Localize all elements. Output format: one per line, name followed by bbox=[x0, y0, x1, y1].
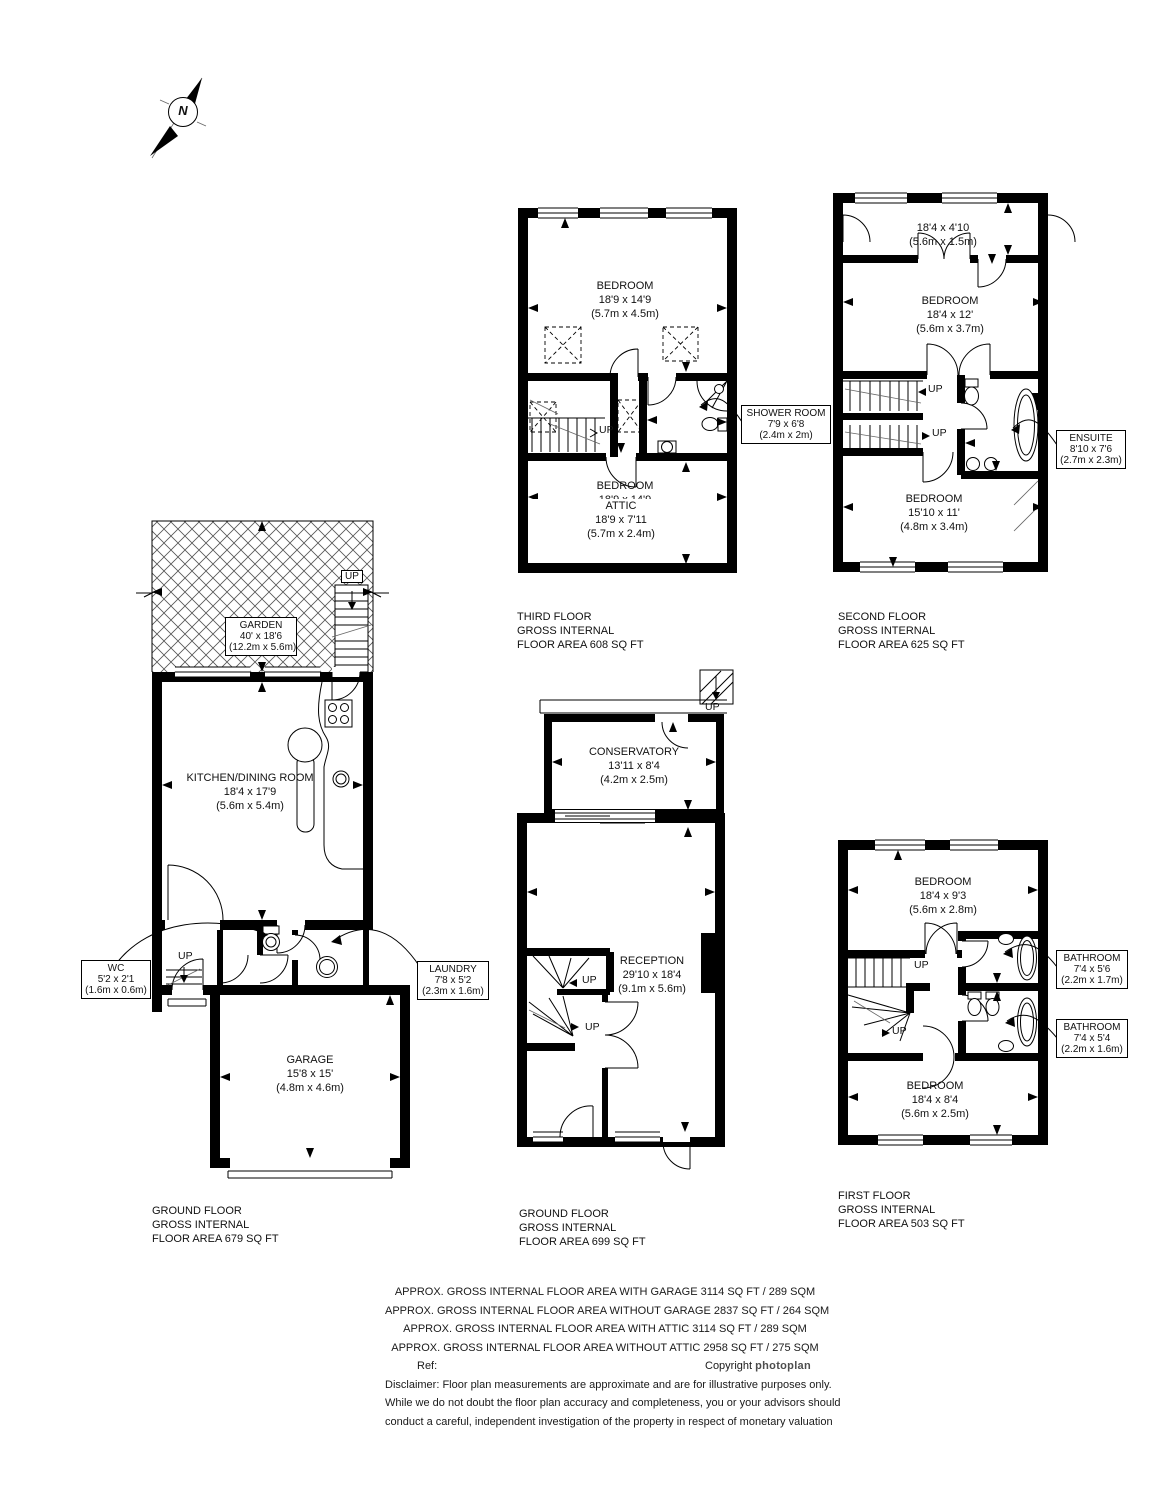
room-name: BEDROOM bbox=[535, 279, 715, 293]
photoplan-logo: photoplan bbox=[755, 1360, 811, 1372]
third-stairs bbox=[528, 400, 605, 452]
room-size-metric: (5.6m x 3.7m) bbox=[860, 322, 1040, 336]
stairs-up-label: UP bbox=[892, 1025, 907, 1037]
room-name: BEDROOM bbox=[535, 479, 715, 493]
room-name: WC bbox=[85, 963, 147, 974]
sink-icon bbox=[658, 441, 676, 453]
room-name: ENSUITE bbox=[1060, 433, 1122, 444]
room-name: BEDROOM bbox=[845, 1079, 1025, 1093]
toilet-icon bbox=[263, 926, 280, 951]
annotation-bathroom2: BATHROOM 7'4 x 5'4 (2.2m x 1.6m) bbox=[1056, 1019, 1128, 1058]
room-name: SHOWER ROOM bbox=[745, 408, 827, 419]
room-name: BATHROOM bbox=[1060, 953, 1124, 964]
disclaimer-line: conduct a careful, independent investiga… bbox=[385, 1413, 825, 1432]
stairs-up-label: UP bbox=[705, 701, 720, 713]
room-name: CONSERVATORY bbox=[544, 745, 724, 759]
annotation-shower-room: SHOWER ROOM 7'9 x 6'8 (2.4m x 2m) bbox=[741, 405, 831, 444]
floor-area: FLOOR AREA 679 SQ FT bbox=[152, 1232, 279, 1246]
room-name: BATHROOM bbox=[1060, 1022, 1124, 1033]
room-name: BEDROOM bbox=[860, 294, 1040, 308]
room-size-imperial: 18'4 x 12' bbox=[860, 308, 1040, 322]
annotation-laundry: LAUNDRY 7'8 x 5'2 (2.3m x 1.6m) bbox=[417, 961, 489, 1000]
entry-stairs bbox=[166, 967, 202, 985]
copyright-label: Copyright bbox=[705, 1360, 752, 1372]
floor-gross: GROSS INTERNAL bbox=[517, 624, 644, 638]
disclaimer-line: Disclaimer: Floor plan measurements are … bbox=[385, 1376, 825, 1395]
room-size-metric: (2.3m x 1.6m) bbox=[421, 986, 485, 997]
summary-line: APPROX. GROSS INTERNAL FLOOR AREA WITH G… bbox=[385, 1283, 825, 1302]
compass-north-label: N bbox=[172, 103, 194, 118]
annotation-wc: WC 5'2 x 2'1 (1.6m x 0.6m) bbox=[81, 960, 151, 999]
room-size-metric: (2.4m x 2m) bbox=[745, 430, 827, 441]
room-name: ATTIC bbox=[531, 499, 711, 513]
room-label-kitchen: KITCHEN/DINING ROOM 18'4 x 17'9 (5.6m x … bbox=[160, 771, 340, 813]
room-size-metric: (4.8m x 3.4m) bbox=[844, 520, 1024, 534]
ref-row: Ref: Copyright photoplan bbox=[385, 1357, 825, 1376]
floor-name: SECOND FLOOR bbox=[838, 610, 965, 624]
entry-steps bbox=[700, 670, 733, 704]
room-label-garage: GARAGE 15'8 x 15' (4.8m x 4.6m) bbox=[220, 1053, 400, 1095]
room-size-imperial: 18'4 x 8'4 bbox=[845, 1093, 1025, 1107]
second-stairs bbox=[843, 381, 930, 453]
room-label-bedroom1-first: BEDROOM 18'4 x 9'3 (5.6m x 2.8m) bbox=[853, 875, 1033, 917]
stairs-up-label: UP bbox=[582, 974, 597, 986]
room-label-bedroom1-second: BEDROOM 18'4 x 12' (5.6m x 3.7m) bbox=[860, 294, 1040, 336]
room-size-metric: (5.6m x 2.5m) bbox=[845, 1107, 1025, 1121]
room-name: LAUNDRY bbox=[421, 964, 485, 975]
stairs-up-label: UP bbox=[178, 950, 193, 962]
floor-gross: GROSS INTERNAL bbox=[152, 1218, 279, 1232]
room-size-imperial: 7'4 x 5'4 bbox=[1060, 1033, 1124, 1044]
room-label-bedroom2-second: BEDROOM 15'10 x 11' (4.8m x 3.4m) bbox=[844, 492, 1024, 534]
floor-name: THIRD FLOOR bbox=[517, 610, 644, 624]
floor-area: FLOOR AREA 699 SQ FT bbox=[519, 1235, 646, 1249]
third-windows bbox=[538, 208, 712, 218]
room-size-metric: (2.7m x 2.3m) bbox=[1060, 455, 1122, 466]
room-name: BEDROOM bbox=[853, 875, 1033, 889]
room-size-metric: (1.6m x 0.6m) bbox=[85, 985, 147, 996]
toilet-icon bbox=[968, 992, 999, 1016]
annotation-bathroom1: BATHROOM 7'4 x 5'6 (2.2m x 1.7m) bbox=[1056, 950, 1128, 989]
floor-gross: GROSS INTERNAL bbox=[838, 624, 965, 638]
floor-label-first: FIRST FLOOR GROSS INTERNAL FLOOR AREA 50… bbox=[838, 1189, 965, 1231]
floor-label-second: SECOND FLOOR GROSS INTERNAL FLOOR AREA 6… bbox=[838, 610, 965, 652]
room-name: GARAGE bbox=[220, 1053, 400, 1067]
annotation-ensuite: ENSUITE 8'10 x 7'6 (2.7m x 2.3m) bbox=[1056, 430, 1126, 469]
room-size-imperial: 40' x 18'6 bbox=[229, 631, 293, 642]
stairs-up-label: UP bbox=[599, 424, 614, 436]
room-name: GARDEN bbox=[229, 620, 293, 631]
room-size-imperial: 15'8 x 15' bbox=[220, 1067, 400, 1081]
room-size-metric: (5.6m x 5.4m) bbox=[160, 799, 340, 813]
copyright: Copyright photoplan bbox=[705, 1357, 811, 1376]
room-size-metric: (12.2m x 5.6m) bbox=[229, 642, 293, 653]
room-size-imperial: 18'4 x 9'3 bbox=[853, 889, 1033, 903]
room-label-attic: ATTIC 18'9 x 7'11 (5.7m x 2.4m) bbox=[531, 499, 711, 541]
room-size-imperial: 18'4 x 17'9 bbox=[160, 785, 340, 799]
summary-line: APPROX. GROSS INTERNAL FLOOR AREA WITH A… bbox=[385, 1320, 825, 1339]
room-name: RECEPTION bbox=[562, 954, 742, 968]
stairs-up-label: UP bbox=[932, 427, 947, 439]
floor-area: FLOOR AREA 608 SQ FT bbox=[517, 638, 644, 652]
ground-floor-middle-plan bbox=[505, 660, 775, 1175]
ground-mid-doors bbox=[560, 722, 690, 1169]
laundry-leader-line bbox=[331, 929, 420, 967]
room-size-metric: (5.6m x 2.8m) bbox=[853, 903, 1033, 917]
room-size-imperial: 18'9 x 7'11 bbox=[531, 513, 711, 527]
floor-name: GROUND FLOOR bbox=[152, 1204, 279, 1218]
garden-stairs bbox=[332, 585, 371, 672]
toilet-icon bbox=[965, 379, 979, 405]
floor-area: FLOOR AREA 625 SQ FT bbox=[838, 638, 965, 652]
room-size-imperial: 7'4 x 5'6 bbox=[1060, 964, 1124, 975]
kitchen-hob-icon bbox=[325, 700, 352, 727]
floor-label-ground-left: GROUND FLOOR GROSS INTERNAL FLOOR AREA 6… bbox=[152, 1204, 279, 1246]
toilet-icon bbox=[702, 418, 727, 432]
sink-icon bbox=[967, 458, 998, 471]
floor-gross: GROSS INTERNAL bbox=[838, 1203, 965, 1217]
room-label-landing: 18'4 x 4'10 (5.6m x 1.5m) bbox=[883, 221, 1003, 249]
floor-name: GROUND FLOOR bbox=[519, 1207, 646, 1221]
bathtub-icon bbox=[1014, 389, 1038, 461]
room-size-imperial: 8'10 x 7'6 bbox=[1060, 444, 1122, 455]
disclaimer-line: While we do not doubt the floor plan acc… bbox=[385, 1394, 825, 1413]
annotation-garden: GARDEN 40' x 18'6 (12.2m x 5.6m) bbox=[225, 617, 297, 656]
stairs-up-label: UP bbox=[341, 570, 363, 583]
room-size-metric: (5.6m x 1.5m) bbox=[883, 235, 1003, 249]
porch-lines bbox=[540, 700, 727, 713]
washing-machine-icon bbox=[317, 957, 338, 978]
floor-name: FIRST FLOOR bbox=[838, 1189, 965, 1203]
room-name: KITCHEN/DINING ROOM bbox=[160, 771, 340, 785]
ref-label: Ref: bbox=[417, 1357, 437, 1376]
stairs-up-label: UP bbox=[914, 959, 929, 971]
room-label-bedroom-third-main: BEDROOM 18'9 x 14'9 (5.7m x 4.5m) bbox=[535, 279, 715, 321]
room-name: BEDROOM bbox=[844, 492, 1024, 506]
floorplan-page: N bbox=[0, 0, 1163, 1500]
area-summary: APPROX. GROSS INTERNAL FLOOR AREA WITH G… bbox=[385, 1283, 825, 1431]
floor-label-ground-mid: GROUND FLOOR GROSS INTERNAL FLOOR AREA 6… bbox=[519, 1207, 646, 1249]
room-label-conservatory: CONSERVATORY 13'11 x 8'4 (4.2m x 2.5m) bbox=[544, 745, 724, 787]
room-size-imperial: 7'8 x 5'2 bbox=[421, 975, 485, 986]
floor-area: FLOOR AREA 503 SQ FT bbox=[838, 1217, 965, 1231]
room-size-imperial: 13'11 x 8'4 bbox=[544, 759, 724, 773]
room-size-metric: (4.8m x 4.6m) bbox=[220, 1081, 400, 1095]
stairs-up-label: UP bbox=[928, 383, 943, 395]
room-size-imperial: 18'9 x 14'9 bbox=[535, 293, 715, 307]
room-size-metric: (5.7m x 2.4m) bbox=[531, 527, 711, 541]
summary-line: APPROX. GROSS INTERNAL FLOOR AREA WITHOU… bbox=[385, 1302, 825, 1321]
room-size-imperial: 15'10 x 11' bbox=[844, 506, 1024, 520]
room-size-metric: (2.2m x 1.7m) bbox=[1060, 975, 1124, 986]
room-size-metric: (4.2m x 2.5m) bbox=[544, 773, 724, 787]
floor-gross: GROSS INTERNAL bbox=[519, 1221, 646, 1235]
stairs-up-label: UP bbox=[585, 1021, 600, 1033]
room-size-imperial: 7'9 x 6'8 bbox=[745, 419, 827, 430]
room-size-metric: (5.7m x 4.5m) bbox=[535, 307, 715, 321]
room-label-bedroom2-first: BEDROOM 18'4 x 8'4 (5.6m x 2.5m) bbox=[845, 1079, 1025, 1121]
room-size-imperial: 5'2 x 2'1 bbox=[85, 974, 147, 985]
room-size-metric: (2.2m x 1.6m) bbox=[1060, 1044, 1124, 1055]
room-size-imperial: 18'4 x 4'10 bbox=[883, 221, 1003, 235]
floor-label-third: THIRD FLOOR GROSS INTERNAL FLOOR AREA 60… bbox=[517, 610, 644, 652]
summary-line: APPROX. GROSS INTERNAL FLOOR AREA WITHOU… bbox=[385, 1339, 825, 1358]
